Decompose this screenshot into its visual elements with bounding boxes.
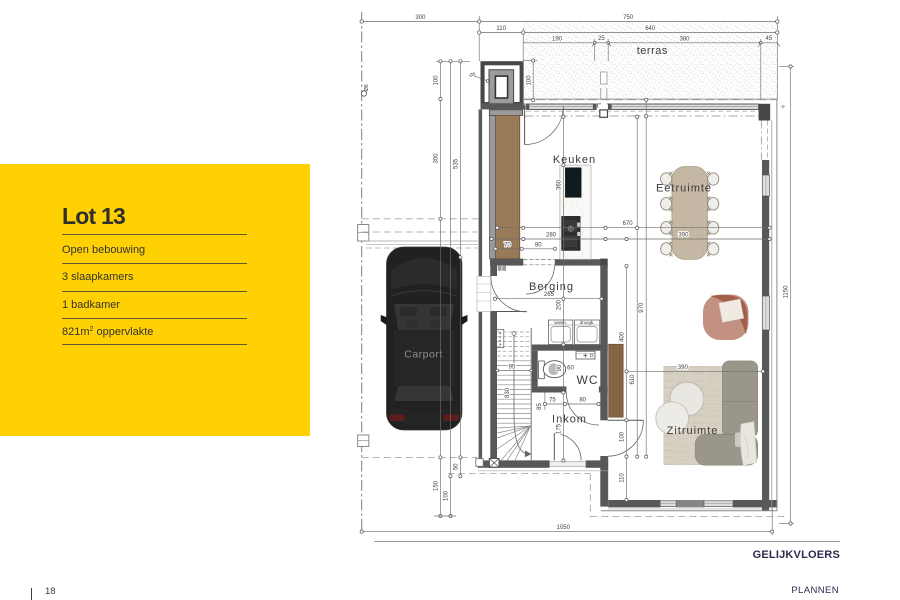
svg-text:190: 190	[552, 37, 563, 43]
svg-text:90: 90	[557, 364, 563, 371]
svg-text:80: 80	[579, 398, 586, 404]
svg-text:droogk.: droogk.	[580, 320, 595, 325]
svg-text:110: 110	[496, 26, 506, 32]
svg-text:95: 95	[509, 364, 516, 370]
svg-text:1050: 1050	[557, 525, 571, 531]
svg-text:280: 280	[546, 233, 557, 239]
svg-text:300: 300	[415, 15, 426, 21]
svg-text:360: 360	[556, 179, 562, 190]
svg-text:610: 610	[630, 374, 636, 385]
svg-text:100: 100	[444, 490, 450, 501]
svg-text:100: 100	[620, 431, 626, 442]
svg-text:Inkom: Inkom	[552, 414, 587, 426]
svg-text:300: 300	[434, 153, 440, 164]
svg-text:200: 200	[556, 299, 562, 310]
svg-text:400: 400	[620, 331, 626, 342]
svg-text:Carport: Carport	[404, 349, 443, 361]
svg-text:1150: 1150	[784, 285, 790, 299]
svg-text:390: 390	[678, 365, 689, 371]
svg-text:390: 390	[678, 233, 689, 239]
svg-text:640: 640	[645, 26, 656, 32]
svg-text:265: 265	[544, 292, 555, 298]
svg-text:830: 830	[505, 387, 511, 398]
svg-text:75: 75	[549, 398, 556, 404]
svg-text:110: 110	[620, 473, 626, 483]
svg-text:terras: terras	[637, 45, 668, 57]
svg-text:750: 750	[623, 15, 634, 21]
svg-text:Berging: Berging	[529, 281, 574, 293]
svg-text:970: 970	[639, 302, 645, 313]
svg-text:380: 380	[679, 37, 690, 43]
svg-text:85: 85	[537, 403, 543, 410]
svg-text:100: 100	[526, 75, 532, 86]
svg-text:45: 45	[766, 36, 773, 42]
svg-text:80: 80	[535, 243, 542, 249]
svg-text:Ø8: Ø8	[364, 84, 370, 91]
svg-text:70: 70	[504, 243, 511, 249]
svg-text:150: 150	[434, 480, 440, 491]
svg-text:25: 25	[598, 36, 605, 42]
svg-text:Zitruimte: Zitruimte	[667, 425, 719, 437]
svg-text:50: 50	[454, 463, 460, 470]
svg-text:WC: WC	[577, 373, 599, 387]
svg-text:60: 60	[567, 366, 574, 372]
svg-text:670: 670	[623, 221, 634, 227]
svg-text:535: 535	[454, 158, 460, 169]
svg-text:Ø8: Ø8	[469, 71, 477, 78]
svg-text:100: 100	[434, 75, 440, 86]
svg-text:wasm.: wasm.	[554, 320, 567, 325]
svg-text:Keuken: Keuken	[553, 154, 596, 166]
svg-text:Eetruimte: Eetruimte	[656, 183, 712, 195]
